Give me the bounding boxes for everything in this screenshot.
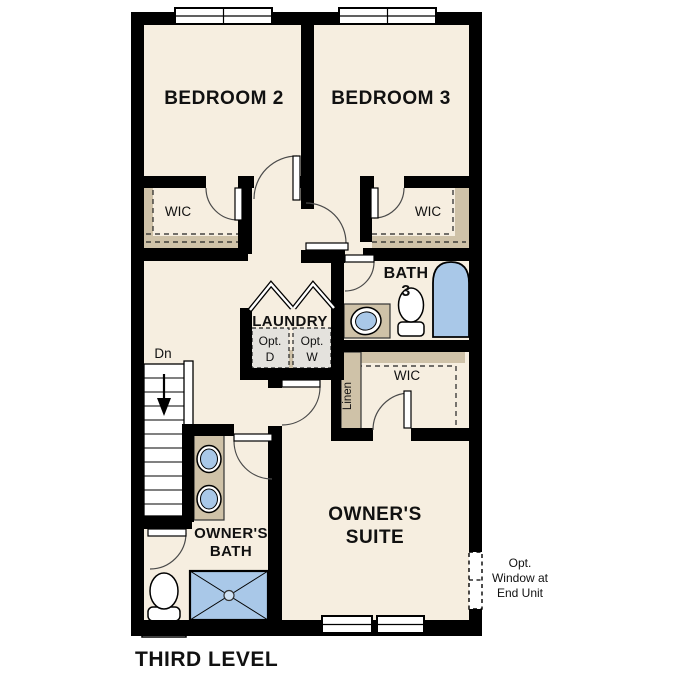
level-title: THIRD LEVEL — [135, 648, 278, 671]
owners-wic-door-leaf — [404, 391, 411, 428]
suite-window-1 — [322, 616, 372, 633]
toilet-room-door-leaf — [148, 529, 186, 536]
opt-dryer-label-line2: D — [266, 350, 275, 364]
bedroom2-label: BEDROOM 2 — [164, 88, 284, 109]
stairs-dn-label: Dn — [154, 346, 171, 361]
wall-outer-right — [469, 12, 482, 636]
wall-under-stairs — [144, 516, 192, 529]
floor-plan-drawing: BEDROOM 2 BEDROOM 3 WIC WIC BATH 3 LAUND… — [0, 0, 687, 687]
owners-wic-label: WIC — [394, 368, 420, 383]
opt-washer-label-line1: Opt. — [301, 334, 324, 348]
opt-end-unit-window — [469, 552, 482, 609]
bedroom3-label: BEDROOM 3 — [331, 88, 451, 109]
wic-bedroom3-label: WIC — [415, 204, 441, 219]
suite-window-2 — [377, 616, 424, 633]
wall-laundry-south — [240, 368, 340, 380]
wic3-door-leaf — [371, 188, 378, 218]
vanity-sink-2 — [197, 486, 221, 513]
wall-wic3-north-b — [404, 176, 469, 188]
wall-wic3-west — [360, 176, 372, 242]
wall-outer-bottom — [131, 620, 482, 636]
wall-bath3-north — [363, 248, 469, 261]
wall-outer-left — [131, 12, 144, 636]
wall-wic2-south — [131, 248, 248, 261]
suite-door-leaf — [282, 380, 320, 387]
opt-washer-label-line2: W — [306, 350, 318, 364]
opt-window-note-line1: Opt. — [509, 556, 532, 570]
owners-bath-label-line1: OWNER'S — [194, 525, 268, 542]
shower — [190, 571, 268, 620]
stair-rail — [184, 361, 193, 433]
wall-owners-wic-south-b — [411, 428, 469, 441]
floor-plan-page: BEDROOM 2 BEDROOM 3 WIC WIC BATH 3 LAUND… — [0, 0, 687, 687]
wall-suite-entry-stub — [268, 372, 282, 388]
wall-stairs-east — [182, 424, 194, 522]
linen-label: Linen — [342, 382, 354, 410]
owners-bath-label-line2: BATH — [210, 543, 252, 560]
shower-drain — [224, 591, 234, 601]
laundry-label: LAUNDRY — [252, 313, 328, 330]
vanity-sink-1 — [197, 446, 221, 473]
owners-bath-door-leaf — [234, 434, 272, 441]
opt-dryer-label-line1: Opt. — [259, 334, 282, 348]
bed3-door-leaf — [306, 243, 348, 250]
bed2-door-leaf — [293, 156, 300, 200]
wall-owners-wic-north — [331, 340, 469, 352]
wic-bedroom2-label: WIC — [165, 204, 191, 219]
bathtub — [433, 262, 469, 337]
wic2-door-leaf — [235, 188, 242, 220]
bath3-door-leaf — [345, 255, 374, 262]
wall-linen-west — [331, 352, 341, 432]
wall-suite-west — [268, 426, 282, 622]
bed2-window — [175, 8, 272, 24]
bed3-window — [339, 8, 436, 24]
owners-suite-label-line1: OWNER'S — [328, 504, 422, 525]
bath3-label-line1: BATH — [384, 265, 429, 282]
wall-bed2-south-a — [144, 176, 206, 188]
bath3-label-line2: 3 — [401, 283, 410, 300]
wall-owners-wic-south-a — [331, 428, 373, 441]
opt-window-note-line2: Window at — [492, 571, 549, 585]
owners-suite-label-line2: SUITE — [346, 527, 404, 548]
opt-window-note-line3: End Unit — [497, 586, 544, 600]
